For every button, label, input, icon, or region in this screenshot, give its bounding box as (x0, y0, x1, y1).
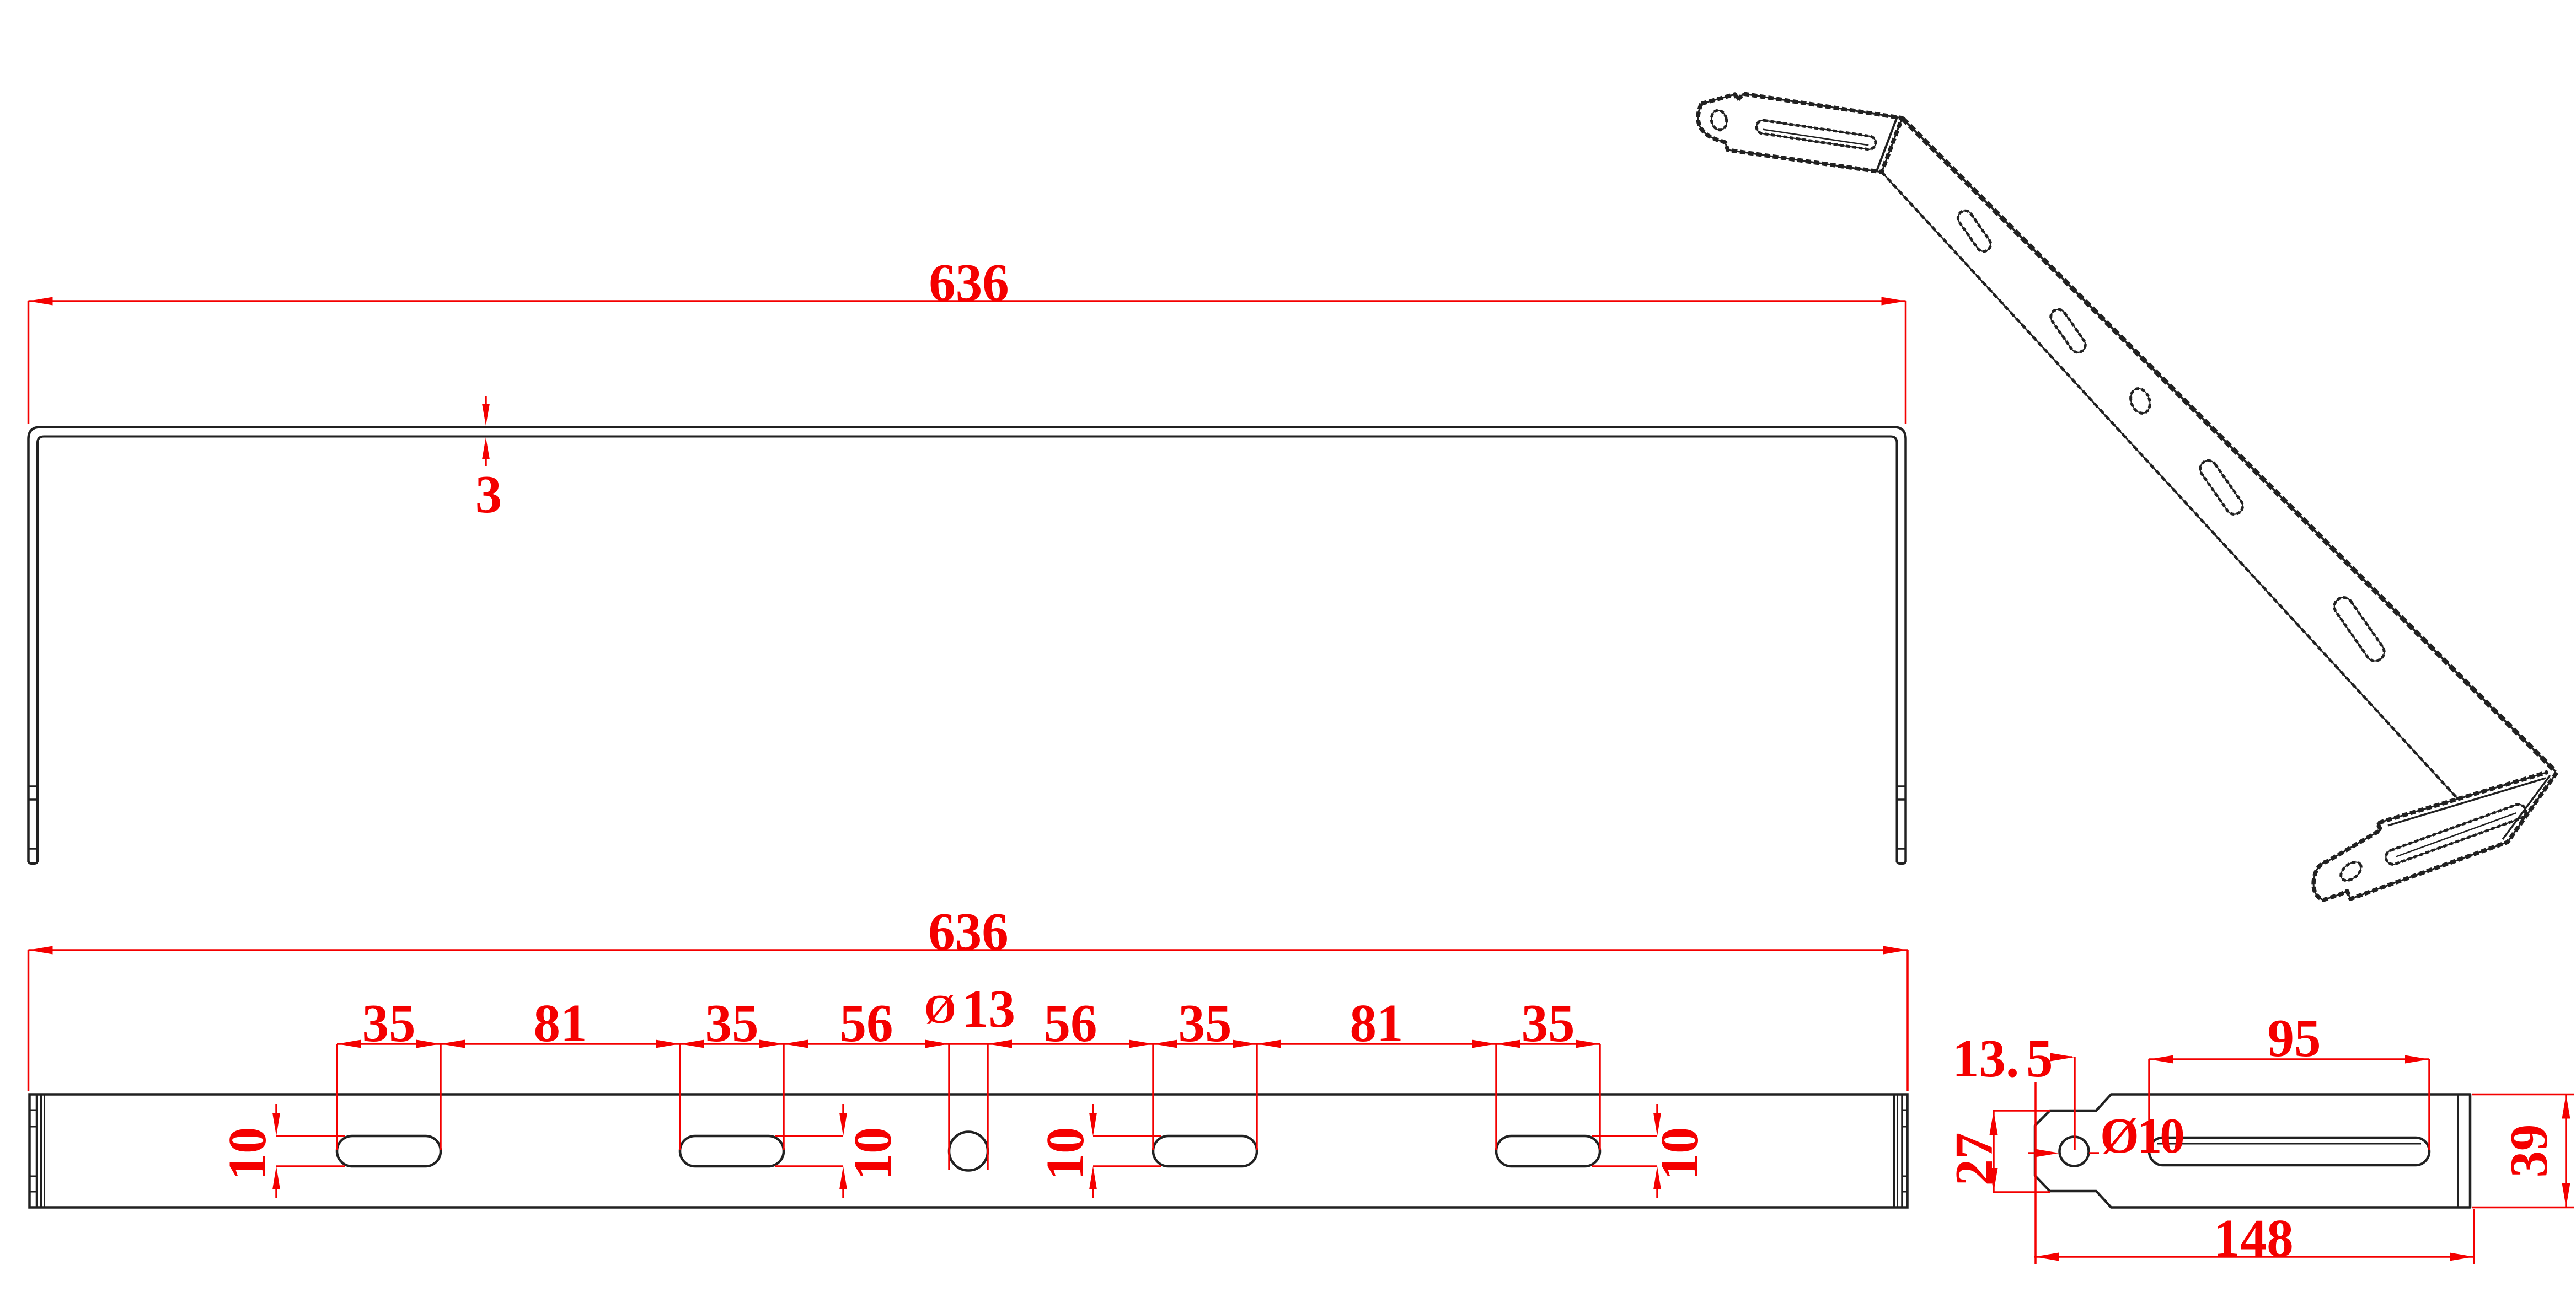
svg-text:39: 39 (2499, 1124, 2558, 1178)
svg-text:13: 13 (962, 979, 1015, 1038)
svg-text:636: 636 (929, 253, 1009, 312)
svg-text:27: 27 (1945, 1133, 2004, 1186)
svg-text:56: 56 (840, 994, 893, 1053)
svg-text:Ø10: Ø10 (2100, 1108, 2183, 1164)
svg-text:148: 148 (2213, 1209, 2294, 1268)
svg-text:10: 10 (1036, 1127, 1095, 1181)
svg-text:636: 636 (928, 902, 1009, 961)
svg-text:35: 35 (1179, 994, 1232, 1053)
svg-text:81: 81 (534, 994, 587, 1053)
svg-text:35: 35 (1522, 994, 1575, 1053)
svg-text:3: 3 (475, 465, 502, 524)
svg-text:81: 81 (1350, 994, 1404, 1053)
svg-text:5: 5 (2026, 1029, 2053, 1088)
svg-text:35: 35 (362, 994, 416, 1053)
svg-text:35: 35 (705, 994, 759, 1053)
svg-text:10: 10 (843, 1127, 902, 1181)
svg-text:10: 10 (1650, 1127, 1709, 1181)
svg-text:10: 10 (218, 1127, 277, 1181)
svg-text:Ø: Ø (924, 987, 956, 1032)
svg-text:56: 56 (1044, 994, 1097, 1053)
svg-text:13.: 13. (1952, 1029, 2019, 1088)
svg-text:95: 95 (2268, 1009, 2321, 1068)
